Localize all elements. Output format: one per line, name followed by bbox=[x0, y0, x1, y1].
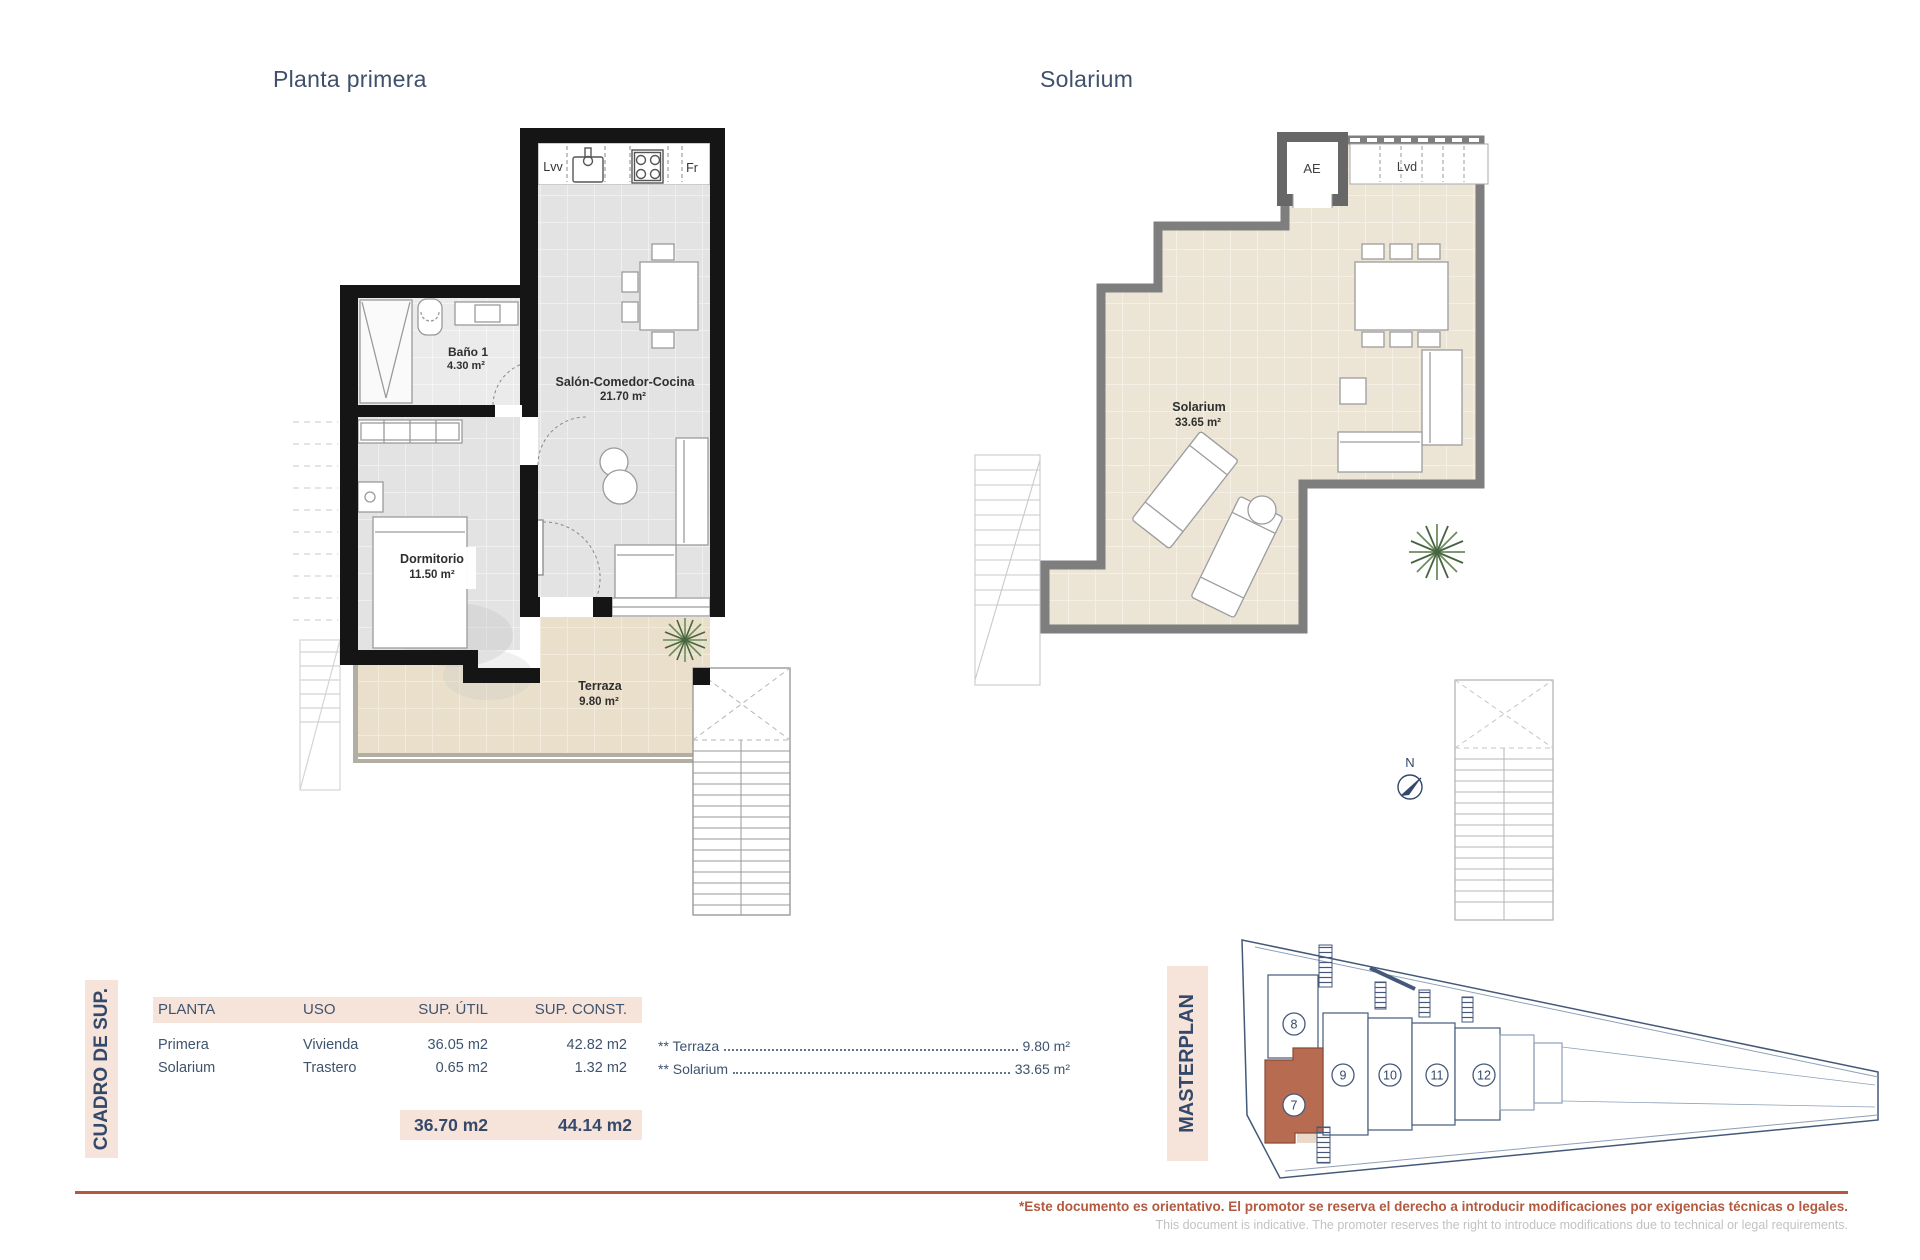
extra-solarium: ** Solarium 33.65 m² bbox=[658, 1061, 1070, 1077]
table-row: Solarium Trastero 0.65 m2 1.32 m2 bbox=[153, 1060, 642, 1078]
footer-disclaimer-es: *Este documento es orientativo. El promo… bbox=[1019, 1199, 1848, 1214]
lvd-shelf: Lvd bbox=[1350, 144, 1488, 184]
outdoor-sofa bbox=[1338, 432, 1422, 472]
lounge-right bbox=[1422, 350, 1462, 445]
extra-label: ** Terraza bbox=[658, 1038, 719, 1054]
sofa bbox=[676, 438, 708, 545]
cell-util: 0.65 m2 bbox=[436, 1060, 488, 1076]
cell-uso: Trastero bbox=[303, 1060, 356, 1076]
footer-rule bbox=[75, 1191, 1848, 1194]
total-util: 36.70 m2 bbox=[414, 1115, 488, 1136]
room-area-solarium: 33.65 m² bbox=[1175, 417, 1221, 429]
unit-number: 11 bbox=[1431, 1069, 1444, 1083]
ae-closet: AE bbox=[1277, 132, 1348, 208]
col-const: SUP. CONST. bbox=[535, 1001, 627, 1018]
round-table bbox=[1248, 496, 1276, 524]
shower bbox=[360, 300, 412, 403]
cell-planta: Solarium bbox=[158, 1060, 215, 1076]
plant-icon bbox=[663, 618, 707, 662]
room-label-solarium: Solarium bbox=[1172, 400, 1226, 414]
side-table bbox=[1340, 378, 1366, 404]
extra-value: 9.80 m² bbox=[1023, 1038, 1070, 1054]
label-lvd: Lvd bbox=[1397, 160, 1417, 174]
dotted-leader bbox=[733, 1071, 1010, 1074]
room-area-dormitorio: 11.50 m² bbox=[409, 569, 455, 581]
cell-uso: Vivienda bbox=[303, 1037, 358, 1053]
summary-side-label: CUADRO DE SUP. bbox=[85, 980, 118, 1158]
col-uso: USO bbox=[303, 1001, 336, 1018]
room-area-terraza: 9.80 m² bbox=[579, 696, 619, 708]
footer-disclaimer-en: This document is indicative. The promote… bbox=[1156, 1218, 1848, 1232]
col-util: SUP. ÚTIL bbox=[418, 1001, 488, 1018]
neighbor-stair-left bbox=[975, 455, 1040, 685]
unit-number: 9 bbox=[1340, 1069, 1347, 1083]
room-label-dormitorio: Dormitorio bbox=[400, 552, 464, 566]
north-arrow-icon: N bbox=[1398, 755, 1422, 799]
table-header-band: PLANTA USO SUP. ÚTIL SUP. CONST. bbox=[153, 997, 642, 1023]
totals-band: 36.70 m2 44.14 m2 bbox=[400, 1110, 642, 1140]
masterplan-side-label: MASTERPLAN bbox=[1167, 966, 1208, 1161]
toilet-icon bbox=[418, 299, 442, 335]
unit-number: 8 bbox=[1291, 1018, 1298, 1032]
kitchen-label-lvv: Lvv bbox=[543, 160, 563, 174]
room-area-bano: 4.30 m² bbox=[447, 360, 485, 372]
nightstand bbox=[358, 482, 383, 512]
neighbor-outline bbox=[293, 422, 340, 790]
room-label-terraza: Terraza bbox=[578, 679, 623, 693]
unit-number: 12 bbox=[1477, 1069, 1491, 1083]
room-label-bano: Baño 1 bbox=[448, 345, 488, 359]
table-row: Primera Vivienda 36.05 m2 42.82 m2 bbox=[153, 1037, 642, 1055]
dotted-leader bbox=[724, 1048, 1017, 1051]
total-const: 44.14 m2 bbox=[558, 1115, 632, 1136]
room-area-salon: 21.70 m² bbox=[600, 391, 646, 403]
outdoor-table bbox=[1355, 262, 1448, 330]
unit-number: 10 bbox=[1383, 1069, 1397, 1083]
plant-icon bbox=[1409, 524, 1465, 580]
extra-value: 33.65 m² bbox=[1015, 1061, 1070, 1077]
masterplan-map: N bbox=[1235, 735, 1920, 1195]
brochure-page: Planta primera Solarium bbox=[0, 0, 1920, 1260]
label-ae: AE bbox=[1303, 161, 1321, 176]
cell-planta: Primera bbox=[158, 1037, 209, 1053]
room-label-salon: Salón-Comedor-Cocina bbox=[556, 375, 696, 389]
north-label: N bbox=[1405, 755, 1414, 770]
unit-number-highlight: 7 bbox=[1291, 1099, 1298, 1113]
col-planta: PLANTA bbox=[158, 1001, 215, 1018]
kitchen-label-fr: Fr bbox=[686, 161, 698, 175]
cell-const: 42.82 m2 bbox=[567, 1037, 627, 1053]
extra-terraza: ** Terraza 9.80 m² bbox=[658, 1038, 1070, 1054]
staircase bbox=[693, 668, 790, 915]
floorplan-planta-primera: Lvv Fr bbox=[270, 60, 800, 930]
cell-util: 36.05 m2 bbox=[428, 1037, 488, 1053]
cell-const: 1.32 m2 bbox=[575, 1060, 627, 1076]
extra-label: ** Solarium bbox=[658, 1061, 728, 1077]
dining-table bbox=[640, 262, 698, 330]
